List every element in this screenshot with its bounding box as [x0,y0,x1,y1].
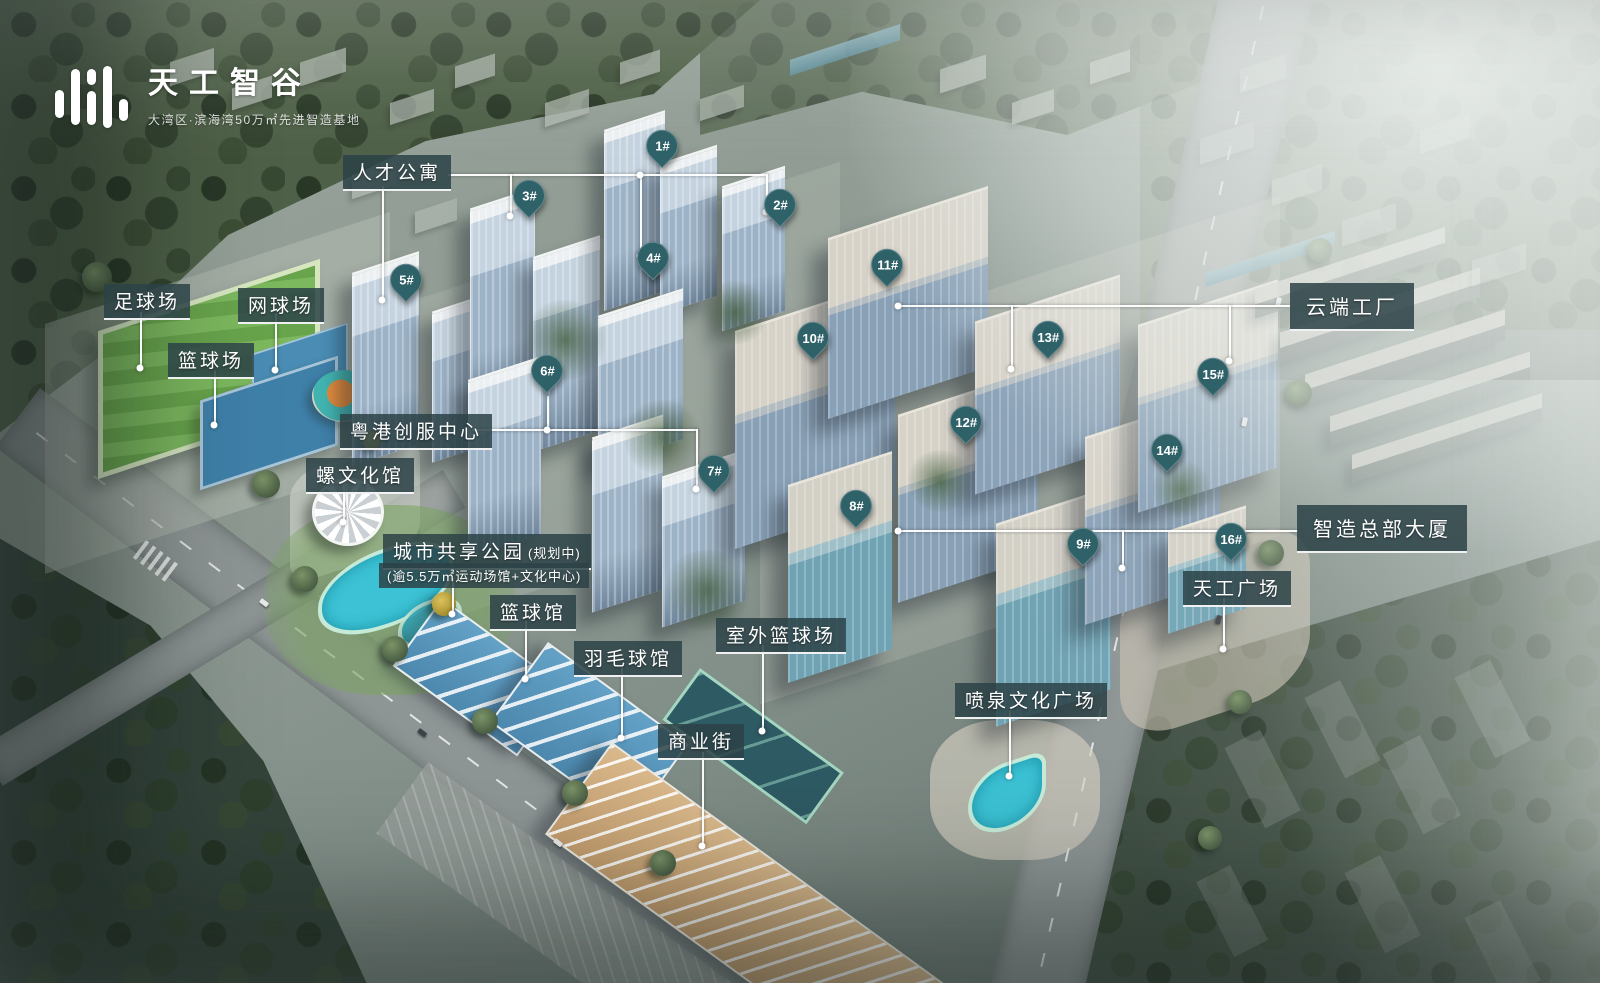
leader-line [547,396,549,430]
label-yuegang-center: 粤港创服中心 [340,414,492,450]
label-outdoor-basketball: 室外篮球场 [716,618,846,654]
line-dot [895,303,902,310]
pin-building-6: 6# [531,355,563,387]
line-dot [1119,565,1126,572]
label-talent-apartment: 人才公寓 [343,155,451,191]
line-dot [637,172,644,179]
label-shared-park-note: (规划中) [528,546,581,561]
line-dot [1006,773,1013,780]
leader-line [762,645,764,731]
label-football-field: 足球场 [104,284,190,320]
label-basketball-hall: 篮球馆 [490,595,576,631]
label-cloud-factory: 云端工厂 [1290,283,1414,331]
line-dot [340,519,347,526]
pin-building-1: 1# [646,130,678,162]
leader-line [621,667,623,738]
line-dot [379,297,386,304]
leader-line [472,429,698,431]
logo-text: 天工智谷 大湾区·滨海湾50万㎡先进智造基地 [148,58,361,128]
masterplan-rendering: 1# 2# 3# 4# 5# 6# 7# 8# 9# 10# 11# 12# 1… [0,0,1600,983]
label-tiangong-plaza: 天工广场 [1183,571,1291,607]
logo-mark-icon [55,58,128,136]
leader-line [1229,305,1231,361]
line-dot [211,422,218,429]
pin-building-5: 5# [390,264,422,296]
pin-building-9: 9# [1067,528,1099,560]
pin-building-11: 11# [871,249,903,281]
pin-building-16: 16# [1215,523,1247,555]
pin-building-15: 15# [1197,358,1229,390]
line-dot [895,528,902,535]
leader-line [898,305,1290,307]
pin-building-13: 13# [1032,321,1064,353]
label-basketball-court: 篮球场 [168,343,254,379]
line-dot [1220,646,1227,653]
line-dot [449,611,456,618]
line-dot [699,843,706,850]
vignette-overlay [0,0,1600,983]
label-commercial-street: 商业街 [658,724,744,760]
pin-building-3: 3# [513,180,545,212]
project-logo: 天工智谷 大湾区·滨海湾50万㎡先进智造基地 [55,58,361,136]
line-dot [1008,366,1015,373]
pin-building-7: 7# [698,455,730,487]
pin-building-4: 4# [637,242,669,274]
pin-building-14: 14# [1151,434,1183,466]
label-fountain-plaza: 喷泉文化广场 [955,683,1107,719]
pin-building-8: 8# [840,490,872,522]
leader-line [140,312,142,368]
pin-building-10: 10# [797,322,829,354]
pin-building-12: 12# [950,406,982,438]
label-shared-park-sub: (逾5.5万㎡运动场馆+文化中心) [379,563,589,588]
label-tennis-court: 网球场 [238,288,324,324]
pin-building-2: 2# [764,189,796,221]
leader-line [1011,305,1013,369]
logo-subtitle: 大湾区·滨海湾50万㎡先进智造基地 [148,111,361,128]
line-dot [507,213,514,220]
leader-line [1009,710,1011,776]
line-dot [522,676,529,683]
leader-line [702,752,704,846]
label-luo-culture-hall: 螺文化馆 [306,458,414,494]
leader-line [448,174,768,176]
leader-line [382,186,384,300]
line-dot [137,365,144,372]
line-dot [618,735,625,742]
leader-line [214,371,216,425]
line-dot [544,427,551,434]
logo-title: 天工智谷 [148,58,361,102]
line-dot [759,728,766,735]
label-badminton-hall: 羽毛球馆 [574,641,682,677]
leader-line [1122,530,1124,568]
line-dot [272,367,279,374]
label-smart-hq-tower: 智造总部大厦 [1297,505,1467,553]
